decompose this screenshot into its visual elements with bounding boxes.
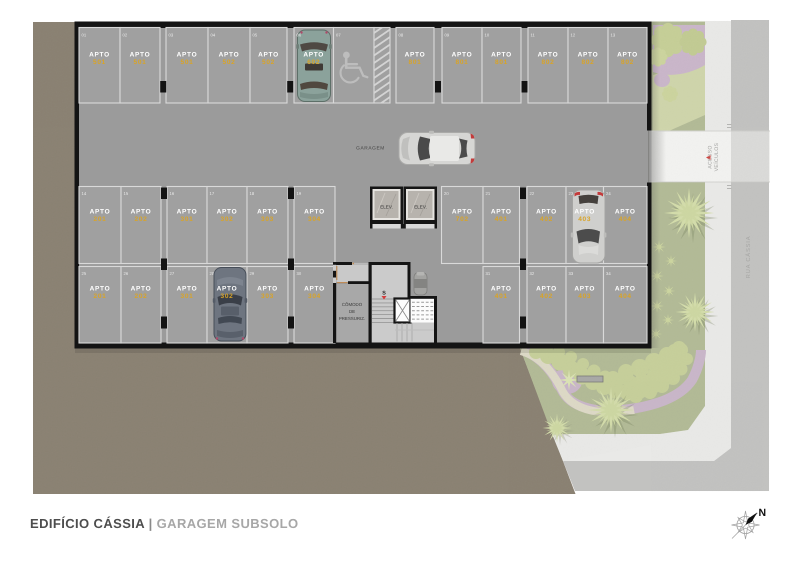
svg-text:802: 802 bbox=[582, 59, 595, 66]
svg-text:24: 24 bbox=[606, 191, 611, 196]
svg-text:06: 06 bbox=[297, 33, 302, 38]
svg-text:501: 501 bbox=[93, 59, 106, 66]
svg-text:EDIFÍCIO CÁSSIA | GARAGEM SUBS: EDIFÍCIO CÁSSIA | GARAGEM SUBSOLO bbox=[30, 516, 298, 531]
svg-text:APTO: APTO bbox=[617, 52, 638, 59]
svg-text:APTO: APTO bbox=[304, 286, 325, 293]
svg-text:APTO: APTO bbox=[452, 52, 473, 59]
svg-text:APTO: APTO bbox=[578, 52, 599, 59]
svg-text:APTO: APTO bbox=[615, 209, 636, 216]
svg-text:303: 303 bbox=[261, 216, 274, 223]
svg-text:501: 501 bbox=[134, 59, 147, 66]
svg-text:502: 502 bbox=[262, 59, 275, 66]
svg-text:403: 403 bbox=[578, 293, 591, 300]
svg-text:APTO: APTO bbox=[574, 286, 595, 293]
svg-text:APTO: APTO bbox=[491, 209, 512, 216]
svg-text:APTO: APTO bbox=[257, 286, 278, 293]
svg-text:20: 20 bbox=[444, 191, 449, 196]
svg-text:26: 26 bbox=[124, 271, 129, 276]
svg-text:03: 03 bbox=[169, 33, 174, 38]
svg-text:APTO: APTO bbox=[131, 209, 152, 216]
svg-text:801: 801 bbox=[456, 59, 469, 66]
svg-text:404: 404 bbox=[619, 293, 632, 300]
svg-text:30: 30 bbox=[297, 271, 302, 276]
svg-text:801: 801 bbox=[409, 59, 422, 66]
svg-text:202: 202 bbox=[135, 293, 148, 300]
svg-text:29: 29 bbox=[250, 271, 255, 276]
svg-text:31: 31 bbox=[486, 271, 491, 276]
svg-text:22: 22 bbox=[530, 191, 535, 196]
svg-text:21: 21 bbox=[486, 191, 491, 196]
svg-text:13: 13 bbox=[611, 33, 616, 38]
svg-text:PRESSURIZ.: PRESSURIZ. bbox=[339, 316, 365, 321]
svg-text:APTO: APTO bbox=[452, 209, 473, 216]
svg-text:402: 402 bbox=[540, 293, 553, 300]
svg-text:403: 403 bbox=[578, 216, 591, 223]
svg-text:APTO: APTO bbox=[90, 286, 111, 293]
svg-text:27: 27 bbox=[170, 271, 175, 276]
svg-text:201: 201 bbox=[94, 293, 107, 300]
svg-text:APTO: APTO bbox=[130, 52, 151, 59]
svg-text:APTO: APTO bbox=[536, 209, 557, 216]
svg-text:302: 302 bbox=[221, 216, 234, 223]
svg-text:801: 801 bbox=[495, 59, 508, 66]
svg-text:33: 33 bbox=[569, 271, 574, 276]
svg-text:APTO: APTO bbox=[304, 209, 325, 216]
svg-text:19: 19 bbox=[297, 191, 302, 196]
svg-text:25: 25 bbox=[82, 271, 87, 276]
svg-text:802: 802 bbox=[542, 59, 555, 66]
svg-text:APTO: APTO bbox=[257, 209, 278, 216]
svg-text:APTO: APTO bbox=[89, 52, 110, 59]
svg-text:12: 12 bbox=[571, 33, 576, 38]
svg-text:304: 304 bbox=[308, 293, 321, 300]
svg-text:14: 14 bbox=[82, 191, 87, 196]
svg-text:APTO: APTO bbox=[405, 52, 426, 59]
svg-text:602: 602 bbox=[307, 59, 320, 66]
svg-text:301: 301 bbox=[181, 216, 194, 223]
svg-text:08: 08 bbox=[399, 33, 404, 38]
svg-text:N: N bbox=[759, 507, 767, 519]
svg-text:S: S bbox=[382, 291, 386, 297]
svg-text:APTO: APTO bbox=[177, 286, 198, 293]
svg-text:05: 05 bbox=[253, 33, 258, 38]
svg-text:04: 04 bbox=[211, 33, 216, 38]
svg-text:APTO: APTO bbox=[177, 52, 198, 59]
svg-text:15: 15 bbox=[124, 191, 129, 196]
svg-text:802: 802 bbox=[621, 59, 634, 66]
svg-text:404: 404 bbox=[619, 216, 632, 223]
svg-text:34: 34 bbox=[606, 271, 611, 276]
svg-text:11: 11 bbox=[531, 33, 536, 38]
svg-text:APTO: APTO bbox=[615, 286, 636, 293]
svg-text:16: 16 bbox=[170, 191, 175, 196]
svg-text:CÔMODO: CÔMODO bbox=[342, 302, 363, 307]
svg-text:32: 32 bbox=[530, 271, 535, 276]
svg-text:303: 303 bbox=[261, 293, 274, 300]
svg-text:07: 07 bbox=[336, 33, 341, 38]
svg-text:APTO: APTO bbox=[303, 52, 324, 59]
svg-text:18: 18 bbox=[250, 191, 255, 196]
svg-text:501: 501 bbox=[181, 59, 194, 66]
svg-text:17: 17 bbox=[210, 191, 215, 196]
svg-text:DE: DE bbox=[349, 309, 355, 314]
svg-text:GARAGEM: GARAGEM bbox=[356, 146, 385, 152]
svg-text:APTO: APTO bbox=[219, 52, 240, 59]
svg-text:APTO: APTO bbox=[574, 209, 595, 216]
svg-text:202: 202 bbox=[135, 216, 148, 223]
svg-text:02: 02 bbox=[123, 33, 128, 38]
svg-text:APTO: APTO bbox=[536, 286, 557, 293]
svg-text:APTO: APTO bbox=[131, 286, 152, 293]
svg-text:401: 401 bbox=[495, 293, 508, 300]
svg-text:01: 01 bbox=[82, 33, 87, 38]
svg-text:APTO: APTO bbox=[491, 286, 512, 293]
svg-text:APTO: APTO bbox=[90, 209, 111, 216]
svg-text:702: 702 bbox=[456, 216, 469, 223]
svg-text:APTO: APTO bbox=[217, 209, 238, 216]
svg-text:APTO: APTO bbox=[538, 52, 559, 59]
svg-text:304: 304 bbox=[308, 216, 321, 223]
svg-text:APTO: APTO bbox=[177, 209, 198, 216]
svg-text:APTO: APTO bbox=[258, 52, 279, 59]
svg-text:301: 301 bbox=[181, 293, 194, 300]
svg-text:201: 201 bbox=[94, 216, 107, 223]
svg-text:APTO: APTO bbox=[217, 286, 238, 293]
svg-text:401: 401 bbox=[495, 216, 508, 223]
svg-text:APTO: APTO bbox=[491, 52, 512, 59]
svg-text:ELEV.: ELEV. bbox=[380, 205, 393, 210]
svg-text:502: 502 bbox=[223, 59, 236, 66]
svg-text:302: 302 bbox=[221, 293, 234, 300]
svg-text:ELEV.: ELEV. bbox=[414, 205, 427, 210]
svg-text:402: 402 bbox=[540, 216, 553, 223]
svg-text:09: 09 bbox=[445, 33, 450, 38]
svg-text:10: 10 bbox=[485, 33, 490, 38]
